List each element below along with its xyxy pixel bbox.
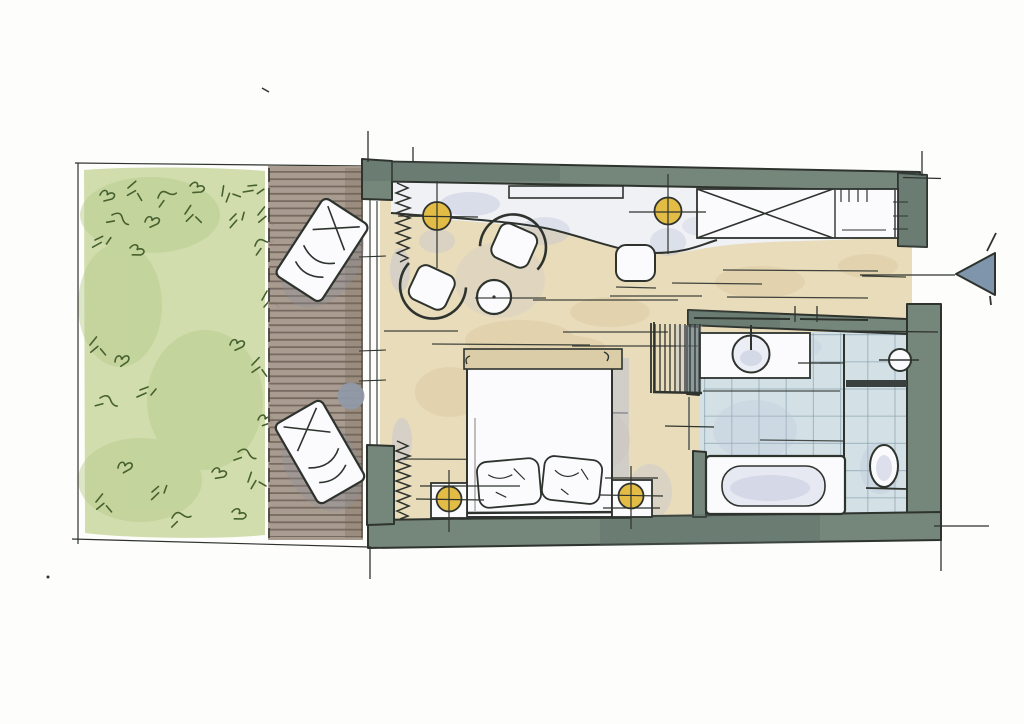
bathtub-water-shadow: [730, 475, 810, 501]
pillow: [476, 457, 542, 508]
toilet-shadow: [876, 455, 892, 481]
deck-side-table: [338, 383, 365, 410]
pillow: [541, 455, 603, 505]
bathtub: [706, 456, 845, 514]
bed-shadow: [612, 358, 629, 478]
wardrobe-body: [697, 189, 898, 238]
floor-plan-drawing: [0, 0, 1024, 724]
wooden-deck: [262, 166, 382, 540]
floor-plan-canvas: [0, 0, 1024, 724]
stray-pen-dot: [47, 576, 50, 579]
toilet-base-line: [866, 488, 907, 489]
stool: [616, 245, 655, 281]
basin-water-shadow: [740, 350, 762, 366]
slat-base: [653, 392, 702, 393]
wardrobe: [697, 189, 908, 238]
glass-partition: [846, 380, 907, 387]
bathroom-door-jamb-bottom: [693, 451, 706, 517]
entrance-arrow-icon: [956, 253, 995, 295]
wall-right-lower: [907, 304, 941, 540]
entrance-arrow: [956, 233, 996, 305]
stray-pen-dash: [262, 88, 269, 92]
bed-foot-band: [464, 349, 622, 369]
wall-left-bottom: [367, 445, 394, 525]
